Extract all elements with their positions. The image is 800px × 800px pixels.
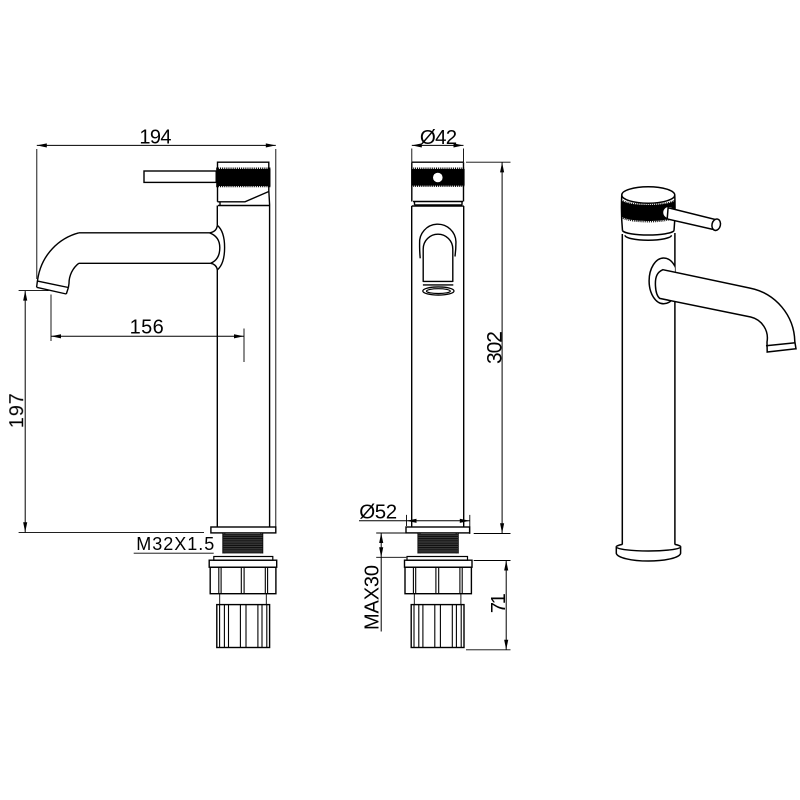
svg-text:MAX30: MAX30 <box>361 565 383 630</box>
svg-text:302: 302 <box>484 331 507 364</box>
svg-text:194: 194 <box>139 126 171 148</box>
svg-text:Ø42: Ø42 <box>420 126 457 149</box>
svg-text:M32X1.5: M32X1.5 <box>136 534 214 554</box>
svg-text:156: 156 <box>130 317 164 339</box>
svg-text:Ø52: Ø52 <box>359 501 397 524</box>
svg-text:197: 197 <box>6 393 28 428</box>
svg-text:71: 71 <box>488 593 510 613</box>
